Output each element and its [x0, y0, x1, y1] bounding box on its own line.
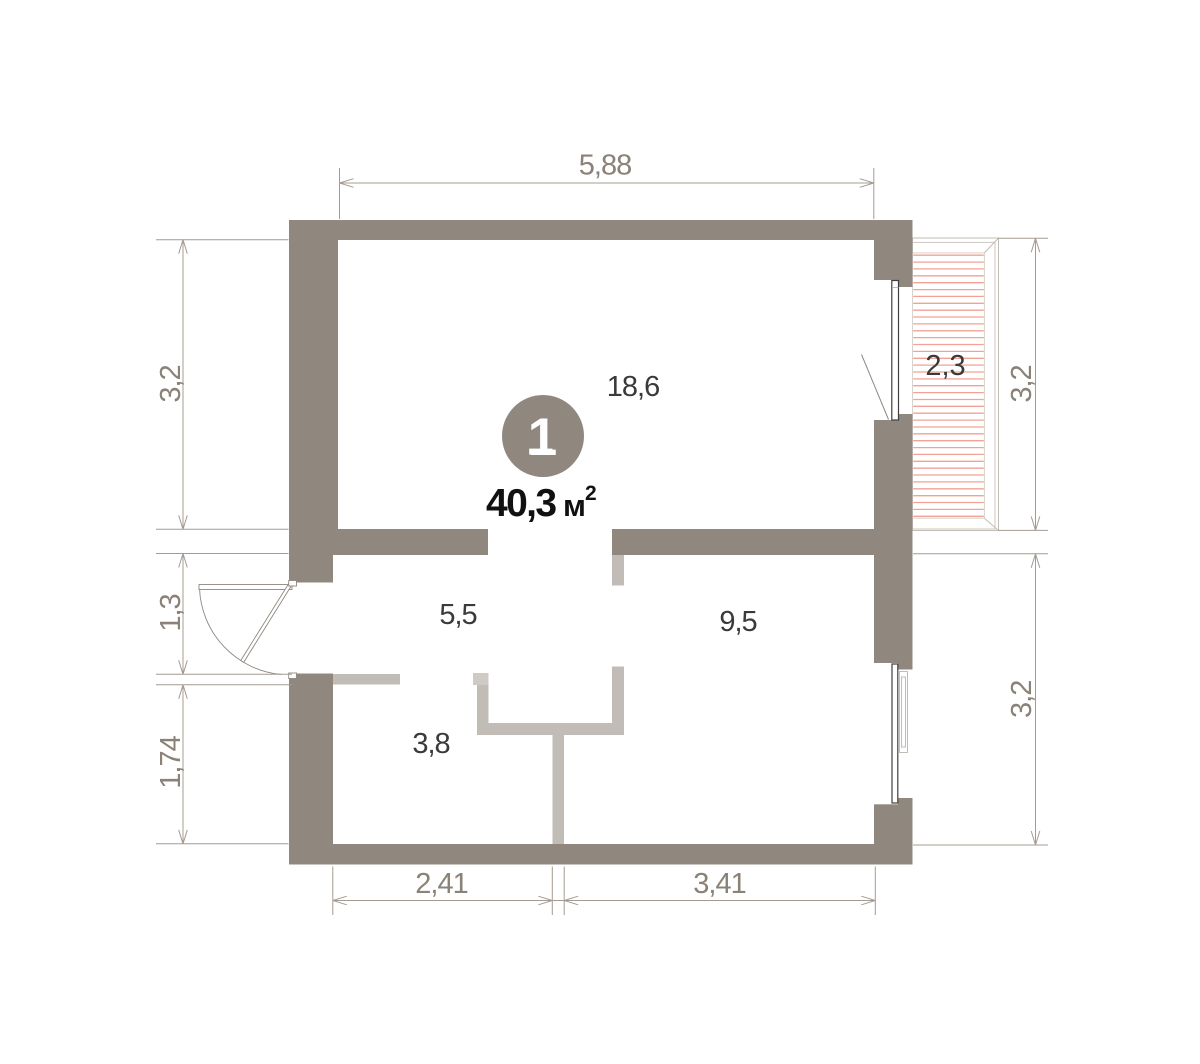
svg-text:40,3: 40,3	[486, 482, 556, 525]
svg-text:3,41: 3,41	[693, 868, 745, 900]
svg-text:2,41: 2,41	[415, 868, 467, 900]
svg-text:2: 2	[585, 482, 597, 505]
svg-text:5,5: 5,5	[439, 599, 476, 631]
svg-text:5,88: 5,88	[579, 150, 631, 182]
svg-text:3,2: 3,2	[1006, 365, 1038, 402]
svg-text:2,3: 2,3	[925, 350, 965, 382]
svg-text:1,3: 1,3	[155, 594, 187, 631]
svg-text:3,8: 3,8	[412, 728, 449, 760]
svg-text:9,5: 9,5	[719, 606, 756, 638]
svg-text:3,2: 3,2	[1006, 681, 1038, 718]
svg-text:18,6: 18,6	[607, 371, 659, 403]
svg-text:3,2: 3,2	[155, 365, 187, 402]
svg-text:1: 1	[528, 408, 557, 467]
svg-text:1,74: 1,74	[155, 735, 187, 788]
svg-text:м: м	[563, 488, 586, 523]
